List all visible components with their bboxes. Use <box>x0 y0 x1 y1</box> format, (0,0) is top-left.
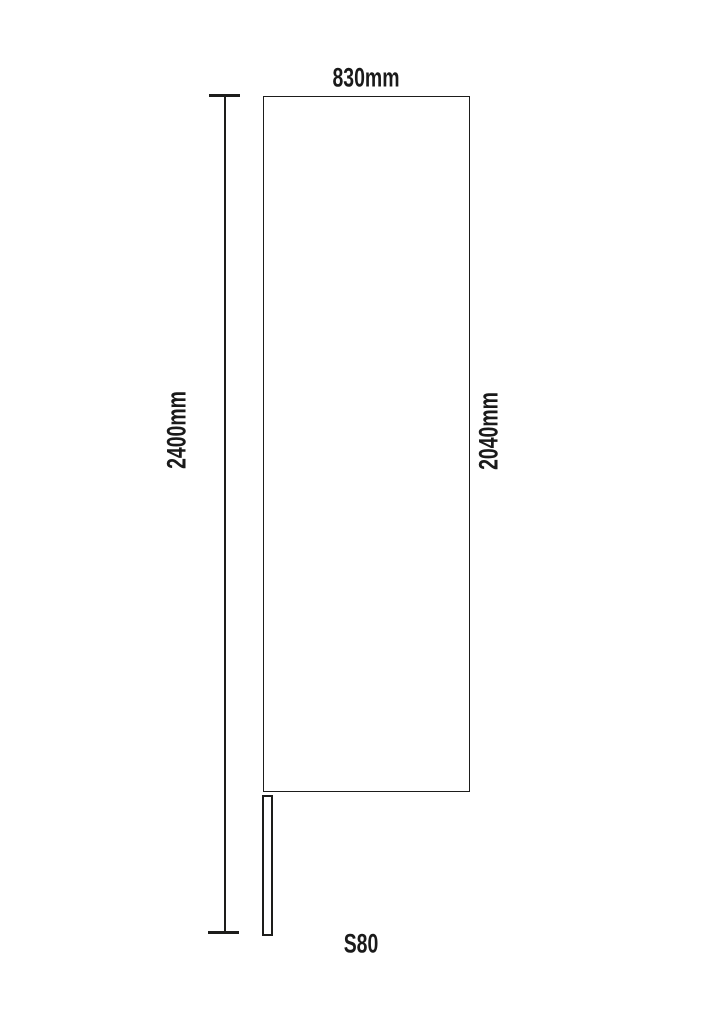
dimension-diagram: 830mm 2400mm 2040mm S80 <box>0 0 724 1033</box>
height-dimension-line <box>224 95 226 934</box>
overall-height-dimension-label: 2400mm <box>164 391 191 469</box>
panel-height-dimension-label: 2040mm <box>476 392 503 470</box>
model-code-label: S80 <box>344 931 379 958</box>
leg-outline <box>262 795 273 936</box>
width-dimension-label: 830mm <box>332 65 399 92</box>
panel-outline <box>263 96 470 792</box>
dimension-cap-bottom-icon <box>208 931 239 934</box>
dimension-cap-top-icon <box>209 94 240 97</box>
